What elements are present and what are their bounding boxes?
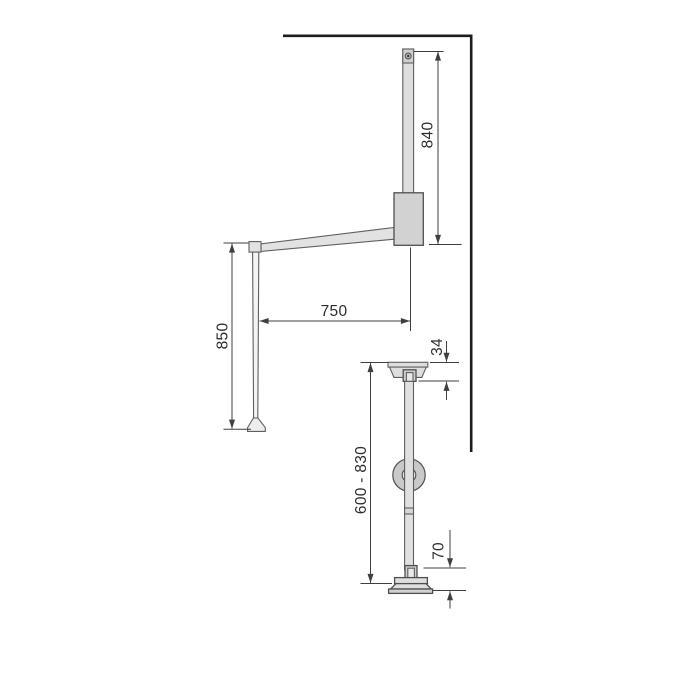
support-arm [261,228,394,252]
mechanism-box [394,193,423,246]
dim-600-830-label: 600 - 830 [353,446,370,514]
base-flare [391,584,432,589]
base-plate [389,589,433,593]
rail-front-view [388,362,433,593]
screw-center-dot [407,55,409,57]
dim-750: 750 [260,248,411,332]
base-connector-inner [408,568,415,578]
dim-70: 70 [424,530,467,609]
wardrobe-lift-dimension-diagram: 840 750 850 34 [0,0,700,700]
technical-drawing-canvas: 840 750 850 34 [0,0,700,700]
pull-rod [253,252,259,418]
dim-840-label: 840 [420,122,437,149]
rail-top-plate [388,362,428,367]
rail-top-connector-inner [406,373,413,382]
rod-joint [405,508,414,514]
dim-850-label: 850 [215,323,232,350]
base-top-bar [395,578,428,584]
arm-end-connector [249,242,261,253]
dim-34-label: 34 [429,338,446,356]
dim-750-label: 750 [321,303,348,320]
dim-70-label: 70 [431,542,448,560]
telescopic-rod [405,381,414,570]
dim-850: 850 [215,243,252,429]
mounting-bar [403,49,414,194]
dim-600-830: 600 - 830 [353,363,392,584]
